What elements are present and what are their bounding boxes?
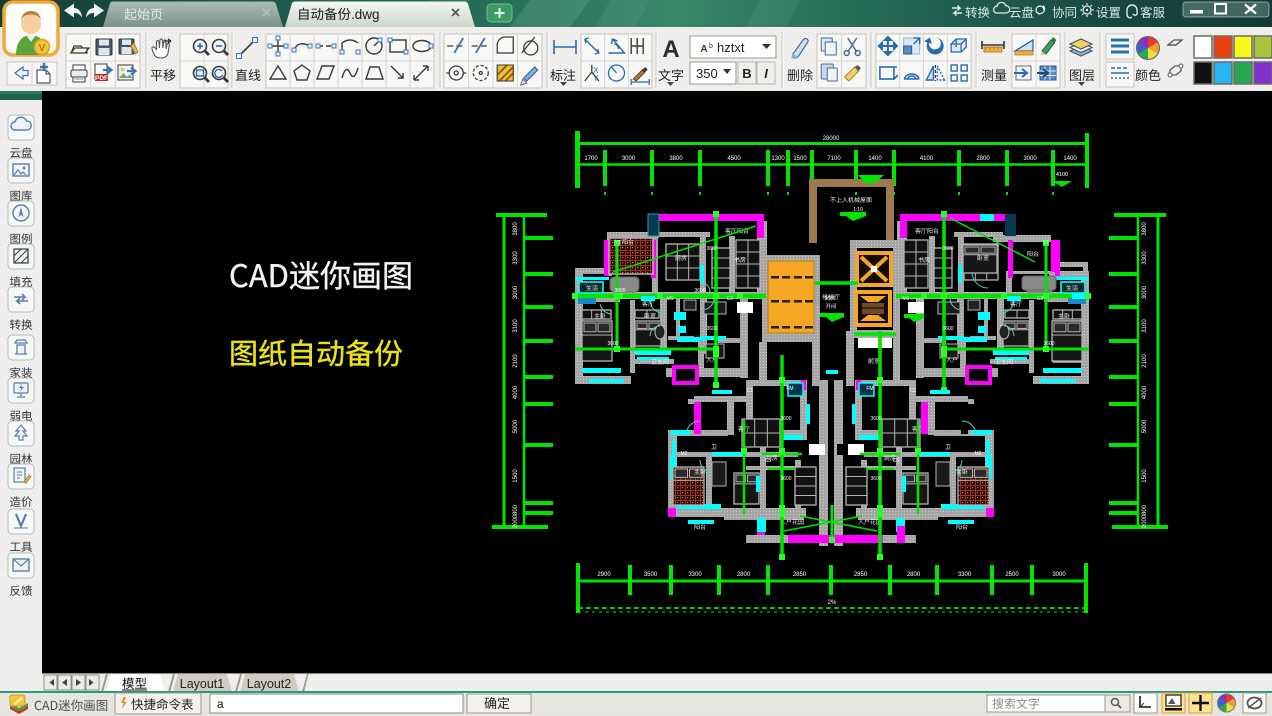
svg-text:2000: 2000 [1142, 514, 1148, 528]
svg-text:A: A [700, 44, 707, 55]
svg-text:2850: 2850 [793, 572, 807, 578]
svg-text:3600: 3600 [870, 416, 881, 422]
svg-text:4500: 4500 [727, 156, 741, 162]
svg-text:5000: 5000 [1142, 419, 1148, 433]
svg-text:3600: 3600 [1043, 341, 1054, 347]
svg-text:3000: 3000 [1052, 572, 1066, 578]
svg-text:3600: 3600 [780, 416, 791, 422]
svg-text:1500: 1500 [513, 469, 519, 483]
svg-text:350: 350 [696, 66, 718, 81]
svg-text:M2: M2 [975, 451, 982, 457]
svg-text:3300: 3300 [688, 572, 702, 578]
svg-text:2%: 2% [828, 600, 837, 606]
svg-text:FM: FM [786, 386, 793, 392]
svg-text:a: a [217, 697, 224, 711]
svg-text:3000: 3000 [1023, 156, 1037, 162]
svg-text:B: B [742, 66, 751, 81]
svg-text:1400: 1400 [868, 156, 882, 162]
svg-text:4000: 4000 [513, 385, 519, 399]
svg-text:3600: 3600 [614, 288, 625, 294]
svg-text:800: 800 [1142, 504, 1148, 515]
svg-text:Layout1: Layout1 [180, 677, 225, 691]
svg-text:800: 800 [513, 504, 519, 515]
svg-text:M1: M1 [667, 296, 674, 302]
svg-text:3600: 3600 [942, 246, 953, 252]
svg-text:FM: FM [866, 386, 873, 392]
svg-text:3100: 3100 [1142, 319, 1148, 333]
svg-text:2500: 2500 [1005, 572, 1019, 578]
svg-text:2800: 2800 [976, 156, 990, 162]
svg-text:1500: 1500 [1142, 469, 1148, 483]
svg-text:Layout2: Layout2 [247, 677, 292, 691]
svg-text:4100: 4100 [1056, 172, 1068, 178]
svg-text:3800: 3800 [1142, 222, 1148, 236]
svg-text:3300: 3300 [1142, 251, 1148, 265]
svg-text:7100: 7100 [827, 156, 841, 162]
svg-text:2800: 2800 [907, 572, 921, 578]
svg-text:3000: 3000 [1142, 285, 1148, 299]
svg-text:YT: YT [1043, 240, 1049, 246]
svg-text:3100: 3100 [513, 319, 519, 333]
svg-text:YT: YT [615, 240, 621, 246]
svg-text:3300: 3300 [958, 572, 972, 578]
svg-text:3600: 3600 [607, 341, 618, 347]
svg-text:C3: C3 [893, 458, 900, 464]
svg-text:3600: 3600 [780, 476, 791, 482]
svg-text:C1: C1 [910, 388, 917, 394]
svg-text:M1: M1 [903, 296, 910, 302]
svg-text:2900: 2900 [597, 572, 611, 578]
svg-text:3600: 3600 [870, 476, 881, 482]
svg-text:2000: 2000 [513, 514, 519, 528]
svg-text:3600: 3600 [706, 326, 717, 332]
svg-text:4000: 4000 [1142, 385, 1148, 399]
svg-text:2800: 2800 [737, 572, 751, 578]
svg-text:28000: 28000 [823, 136, 840, 142]
svg-text:2100: 2100 [1142, 354, 1148, 368]
svg-text:4100: 4100 [920, 156, 934, 162]
svg-text:1400: 1400 [1063, 156, 1077, 162]
svg-text:b: b [709, 43, 713, 50]
svg-text:.dwg: .dwg [351, 7, 380, 22]
svg-text:3800: 3800 [669, 156, 683, 162]
svg-text:C2: C2 [727, 296, 734, 302]
svg-text:A: A [662, 36, 679, 63]
svg-text:hztxt: hztxt [717, 40, 745, 55]
svg-text:1700: 1700 [584, 156, 598, 162]
svg-text:C1: C1 [747, 388, 754, 394]
svg-text:C3: C3 [765, 458, 772, 464]
svg-text:1300: 1300 [771, 156, 785, 162]
svg-text:3600: 3600 [942, 326, 953, 332]
svg-text:3000: 3000 [622, 156, 636, 162]
svg-text:3800: 3800 [513, 222, 519, 236]
svg-text:2100: 2100 [513, 354, 519, 368]
svg-text:3300: 3300 [513, 251, 519, 265]
svg-text:Y: Y [593, 74, 599, 83]
svg-text:2850: 2850 [854, 572, 868, 578]
svg-text:5000: 5000 [513, 419, 519, 433]
svg-text:C2: C2 [1037, 296, 1044, 302]
svg-text:I: I [764, 66, 768, 81]
svg-text:3000: 3000 [513, 285, 519, 299]
svg-text:1500: 1500 [793, 156, 807, 162]
svg-text:3600: 3600 [824, 296, 835, 302]
svg-text:PDF: PDF [95, 75, 108, 82]
svg-text:3600: 3600 [706, 246, 717, 252]
svg-text:V: V [39, 43, 46, 54]
svg-text:3600: 3600 [694, 288, 705, 294]
svg-text:M2: M2 [681, 451, 688, 457]
svg-text:3500: 3500 [644, 572, 658, 578]
